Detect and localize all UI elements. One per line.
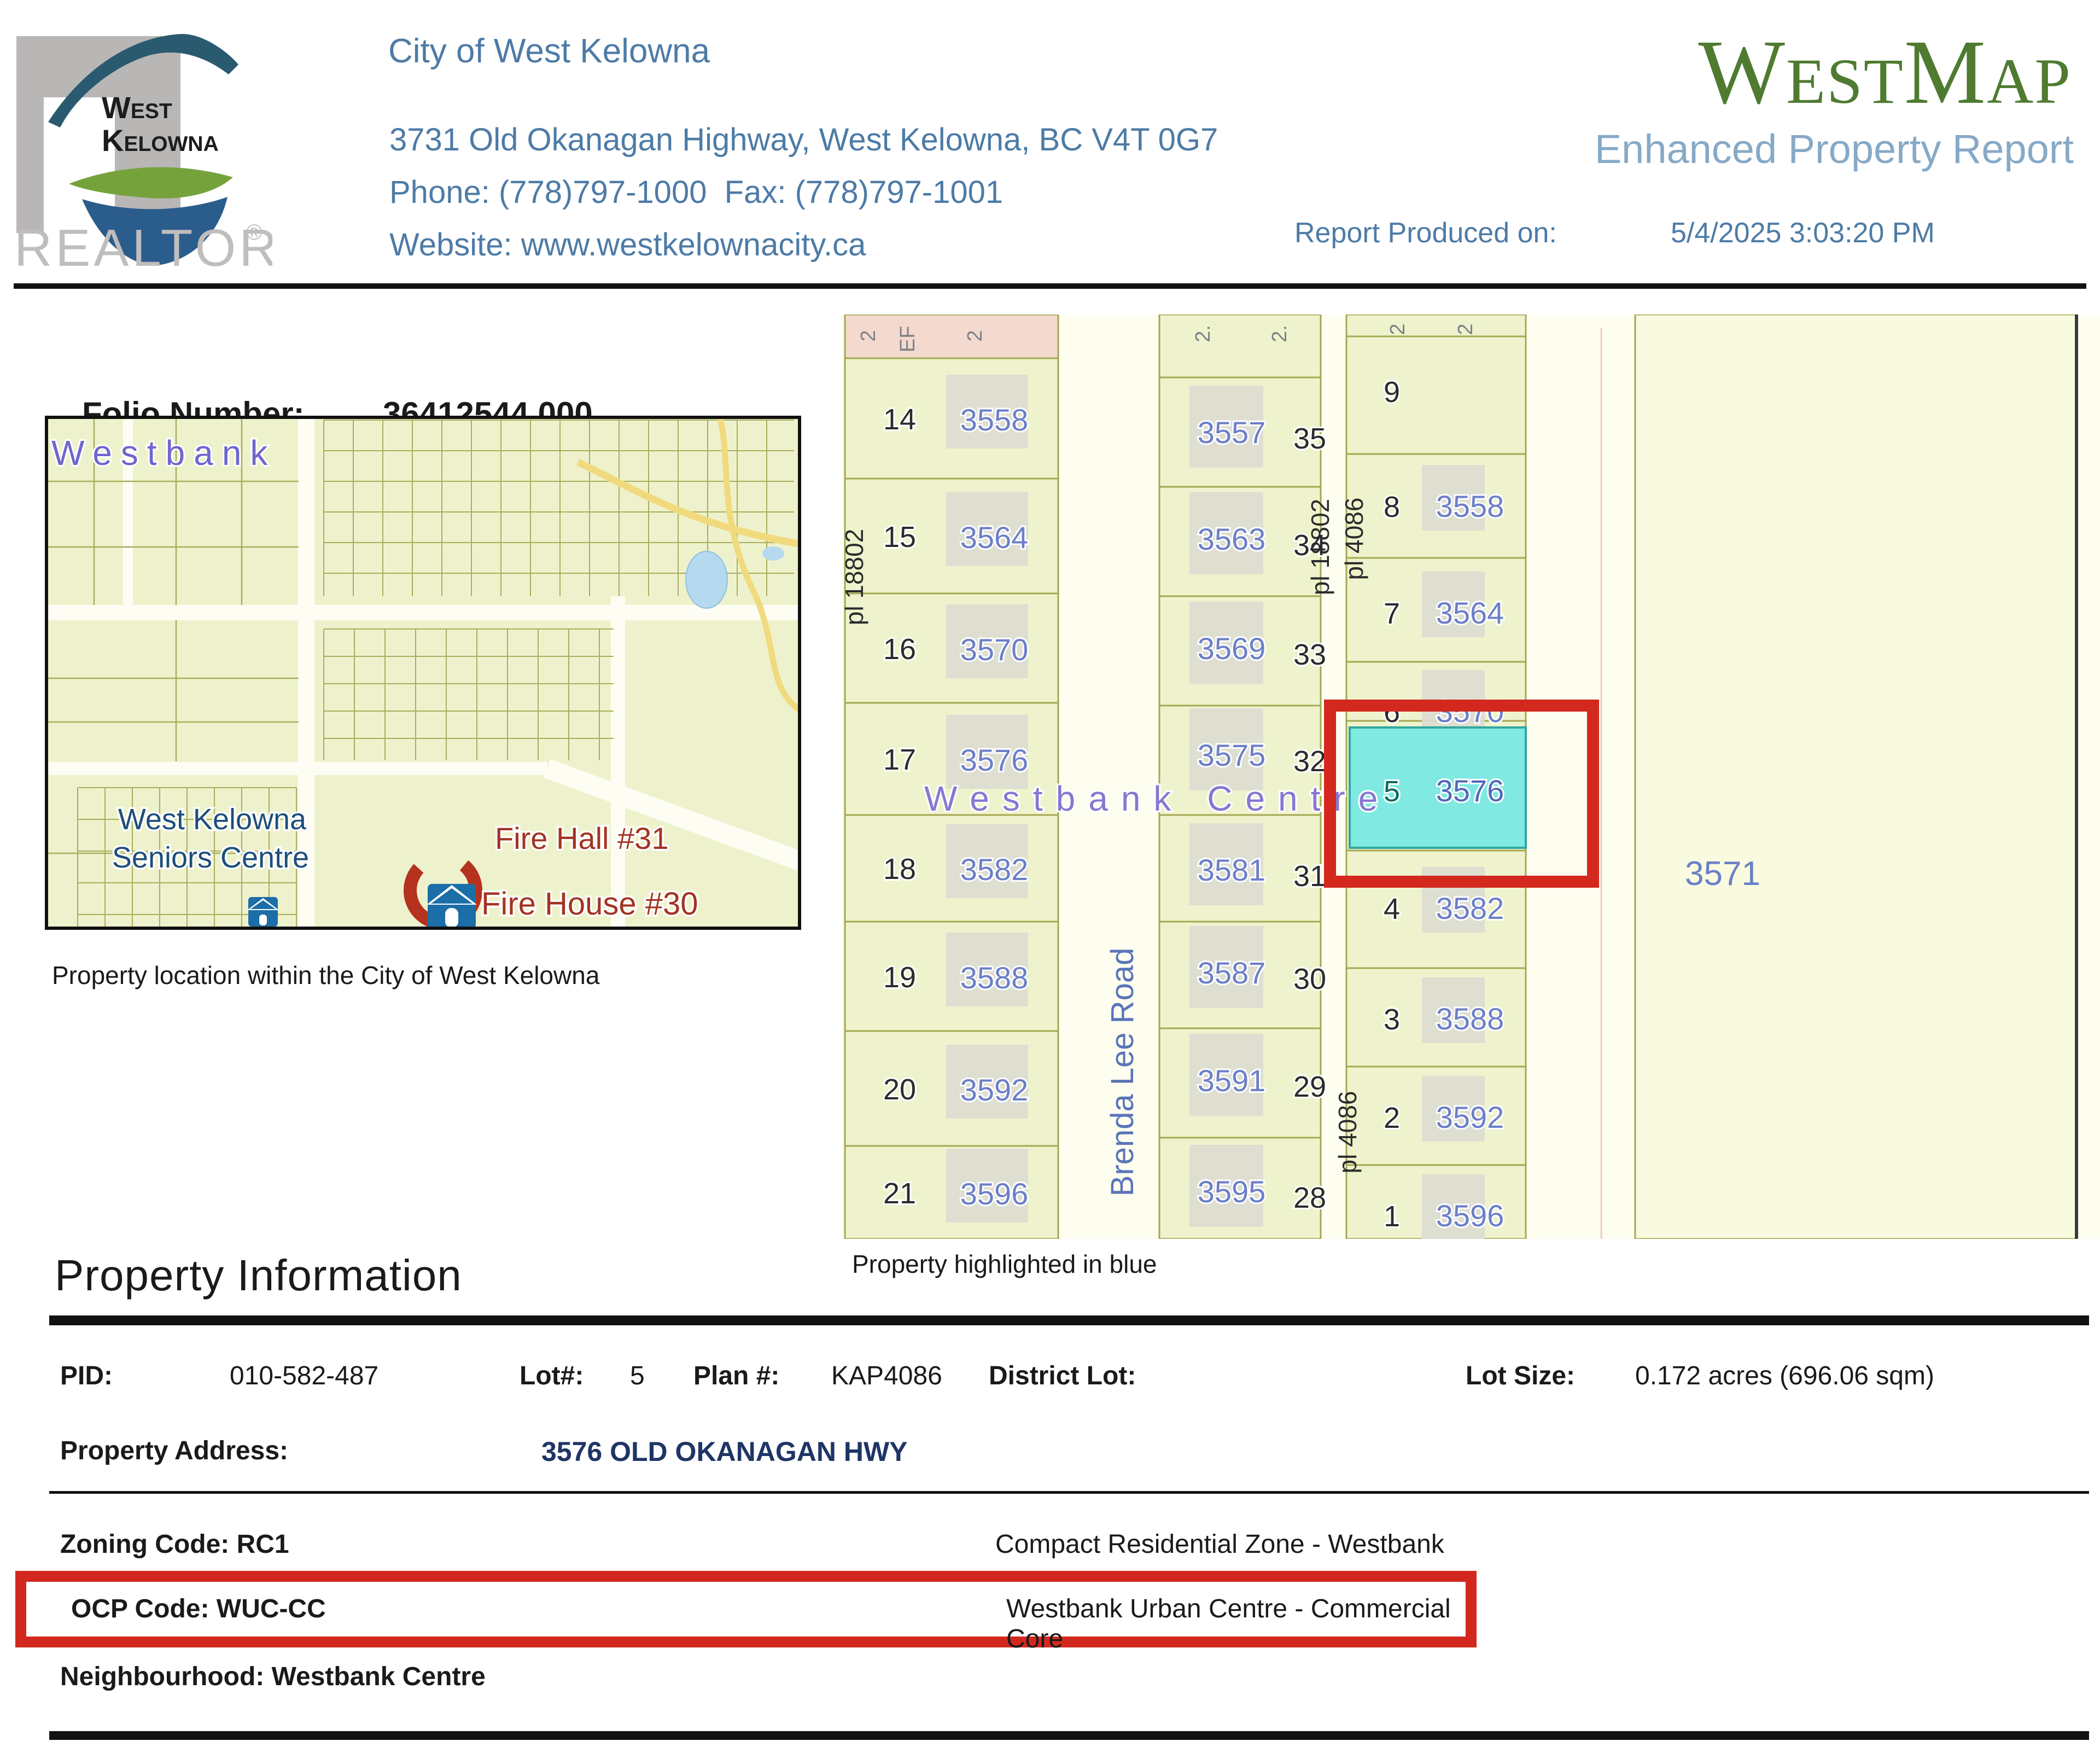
lot-number-label: 21 bbox=[883, 1177, 916, 1210]
lot-number-label: 31 bbox=[1293, 860, 1326, 893]
edge-partial-label: 2 bbox=[1454, 323, 1477, 335]
lot-number-label: 16 bbox=[883, 633, 916, 666]
produced-value: 5/4/2025 3:03:20 PM bbox=[1671, 217, 1935, 249]
logo-line1: West bbox=[102, 90, 172, 125]
parcel-map-caption: Property highlighted in blue bbox=[852, 1249, 1157, 1279]
lot-number-value: 5 bbox=[630, 1361, 645, 1391]
property-address-value: 3576 OLD OKANAGAN HWY bbox=[541, 1436, 908, 1468]
edge-partial-label: 2 bbox=[857, 330, 880, 341]
header-divider bbox=[14, 283, 2086, 289]
pond bbox=[686, 551, 727, 608]
neighbourhood-label: Neighbourhood: Westbank Centre bbox=[60, 1662, 486, 1692]
lot-number-label: 7 bbox=[1384, 597, 1400, 630]
lot-number-label: 32 bbox=[1293, 745, 1326, 778]
lot-address-label: 3569 bbox=[1198, 631, 1266, 666]
brand-subtitle: Enhanced Property Report bbox=[1595, 126, 2074, 172]
lot-address-label: 3596 bbox=[960, 1177, 1029, 1211]
edge-partial-label: 2 bbox=[1386, 323, 1409, 335]
edge-partial-label: 2 bbox=[964, 330, 987, 341]
neighbourhood-map-label: Westbank Centre bbox=[924, 779, 1391, 818]
lot-number-label: 28 bbox=[1293, 1181, 1326, 1214]
lot-number-label: 9 bbox=[1384, 376, 1400, 409]
lot-number-label: 19 bbox=[883, 961, 916, 994]
map-right-border bbox=[2075, 315, 2078, 1239]
section-rule-top bbox=[49, 1315, 2089, 1325]
report-page: West Kelowna REALTOR ® City of West Kelo… bbox=[0, 0, 2100, 1747]
pid-label: PID: bbox=[60, 1361, 113, 1391]
ocp-code-label: OCP Code: WUC-CC bbox=[71, 1594, 326, 1624]
rotated-plan-label: pl 18802 bbox=[842, 529, 868, 626]
edge-partial-label: 2. bbox=[1192, 325, 1215, 342]
lot-address-label: 3587 bbox=[1198, 956, 1266, 990]
lot-size-value: 0.172 acres (696.06 sqm) bbox=[1635, 1361, 1934, 1391]
lot-number-label: 2 bbox=[1384, 1102, 1400, 1134]
property-info-heading: Property Information bbox=[55, 1250, 462, 1301]
lot-number-label: Lot#: bbox=[520, 1361, 584, 1391]
rotated-plan-label: pl 4086 bbox=[1340, 498, 1368, 580]
parcel-map-svg: 1435581535641635701735761835821935882035… bbox=[842, 315, 2100, 1239]
lot-number-label: 8 bbox=[1384, 491, 1400, 523]
plan-value: KAP4086 bbox=[831, 1361, 942, 1391]
pid-value: 010-582-487 bbox=[230, 1361, 378, 1391]
seniors-centre-line2: Seniors Centre bbox=[112, 841, 309, 874]
brand-title: WestMap bbox=[1698, 26, 2072, 118]
city-address: 3731 Old Okanagan Highway, West Kelowna,… bbox=[389, 121, 1218, 158]
lot-address-label: 3558 bbox=[960, 403, 1029, 437]
produced-label: Report Produced on: bbox=[1294, 217, 1557, 249]
lot-address-label: 3564 bbox=[1436, 596, 1504, 630]
lot-address-label: 3591 bbox=[1198, 1063, 1266, 1098]
lot-number-label: 30 bbox=[1293, 963, 1326, 995]
rotated-plan-label: Brenda Lee Road bbox=[1105, 948, 1140, 1197]
location-map: Westbank West Kelowna Seniors Centre Fir… bbox=[45, 416, 801, 930]
city-logo-graphic: West Kelowna REALTOR ® bbox=[10, 10, 272, 272]
lot-address-label: 3581 bbox=[1198, 853, 1266, 887]
plan-label: Plan #: bbox=[693, 1361, 779, 1391]
ocp-code-desc: Westbank Urban Centre - Commercial Core bbox=[1006, 1594, 1466, 1654]
city-phone-fax: Phone: (778)797-1000 Fax: (778)797-1001 bbox=[389, 174, 1003, 211]
lot-address-label: 3592 bbox=[960, 1073, 1029, 1107]
district-lot-label: District Lot: bbox=[989, 1361, 1136, 1391]
lot-address-label: 3582 bbox=[1436, 891, 1504, 925]
fire-house-label: Fire House #30 bbox=[481, 886, 698, 922]
location-map-svg: Westbank West Kelowna Seniors Centre Fir… bbox=[45, 416, 801, 930]
realtor-watermark-text: REALTOR bbox=[14, 219, 272, 272]
city-name: City of West Kelowna bbox=[388, 32, 710, 71]
thin-rule bbox=[49, 1491, 2089, 1494]
lot-number-label: 3 bbox=[1384, 1003, 1400, 1036]
rotated-plan-label: pl 4086 bbox=[1333, 1091, 1362, 1174]
lot-address-label: 3592 bbox=[1436, 1100, 1504, 1134]
seniors-centre-line1: West Kelowna bbox=[118, 803, 307, 836]
lot-number-label: 33 bbox=[1293, 638, 1326, 671]
zoning-code-desc: Compact Residential Zone - Westbank bbox=[995, 1529, 1444, 1559]
building-icon bbox=[247, 897, 279, 927]
firehouse-building-icon bbox=[427, 884, 477, 929]
lot-number-label: 20 bbox=[883, 1073, 916, 1106]
big-parcel-label: 3571 bbox=[1685, 855, 1760, 893]
lot-number-label: 35 bbox=[1293, 422, 1326, 455]
edge-partial-label: 2. bbox=[1268, 325, 1291, 342]
lot-number-label: 29 bbox=[1293, 1070, 1326, 1103]
big-parcel-3571 bbox=[1635, 315, 2076, 1239]
lot-address-label: 3588 bbox=[1436, 1001, 1504, 1036]
city-website: Website: www.westkelownacity.ca bbox=[389, 226, 866, 263]
city-logo: West Kelowna REALTOR ® bbox=[10, 10, 272, 272]
area-label: Westbank bbox=[51, 433, 276, 473]
section-rule-bottom bbox=[49, 1731, 2089, 1740]
lot-size-label: Lot Size: bbox=[1466, 1361, 1575, 1391]
parcel-map: 1435581535641635701735761835821935882035… bbox=[842, 315, 2100, 1239]
pond-small bbox=[762, 546, 784, 561]
edge-partial-label: EF bbox=[896, 326, 919, 353]
zoning-code-label: Zoning Code: RC1 bbox=[60, 1529, 289, 1559]
lot-address-label: 3596 bbox=[1436, 1198, 1504, 1233]
lot-number-label: 1 bbox=[1384, 1200, 1400, 1233]
location-map-caption: Property location within the City of Wes… bbox=[52, 960, 599, 990]
lot-number-label: 15 bbox=[883, 521, 916, 554]
lot-address-label: 3557 bbox=[1198, 415, 1266, 450]
logo-line2: Kelowna bbox=[102, 123, 219, 158]
lot-address-label: 3564 bbox=[960, 520, 1029, 555]
lot-address-label: 3575 bbox=[1198, 738, 1266, 772]
lot-address-label: 3595 bbox=[1198, 1174, 1266, 1209]
property-address-label: Property Address: bbox=[60, 1436, 288, 1466]
fire-hall-label: Fire Hall #31 bbox=[495, 821, 668, 855]
registered-mark: ® bbox=[246, 220, 262, 244]
lot-number-label: 14 bbox=[883, 403, 916, 436]
lot-address-label: 3576 bbox=[1436, 773, 1504, 808]
lot-address-label: 3558 bbox=[1436, 489, 1504, 523]
lot-address-label: 3588 bbox=[960, 960, 1029, 995]
lot-address-label: 3570 bbox=[960, 632, 1029, 667]
lot-address-label: 3582 bbox=[960, 852, 1029, 887]
lot-number-label: 18 bbox=[883, 853, 916, 886]
lot-number-label: 4 bbox=[1384, 893, 1400, 925]
lot-number-label: 17 bbox=[883, 743, 916, 776]
lot-address-label: 3563 bbox=[1198, 522, 1266, 556]
ocp-highlight-box: OCP Code: WUC-CC Westbank Urban Centre -… bbox=[15, 1571, 1477, 1647]
lot-address-label: 3576 bbox=[960, 743, 1029, 777]
rotated-plan-label: pl 18802 bbox=[1306, 499, 1334, 596]
